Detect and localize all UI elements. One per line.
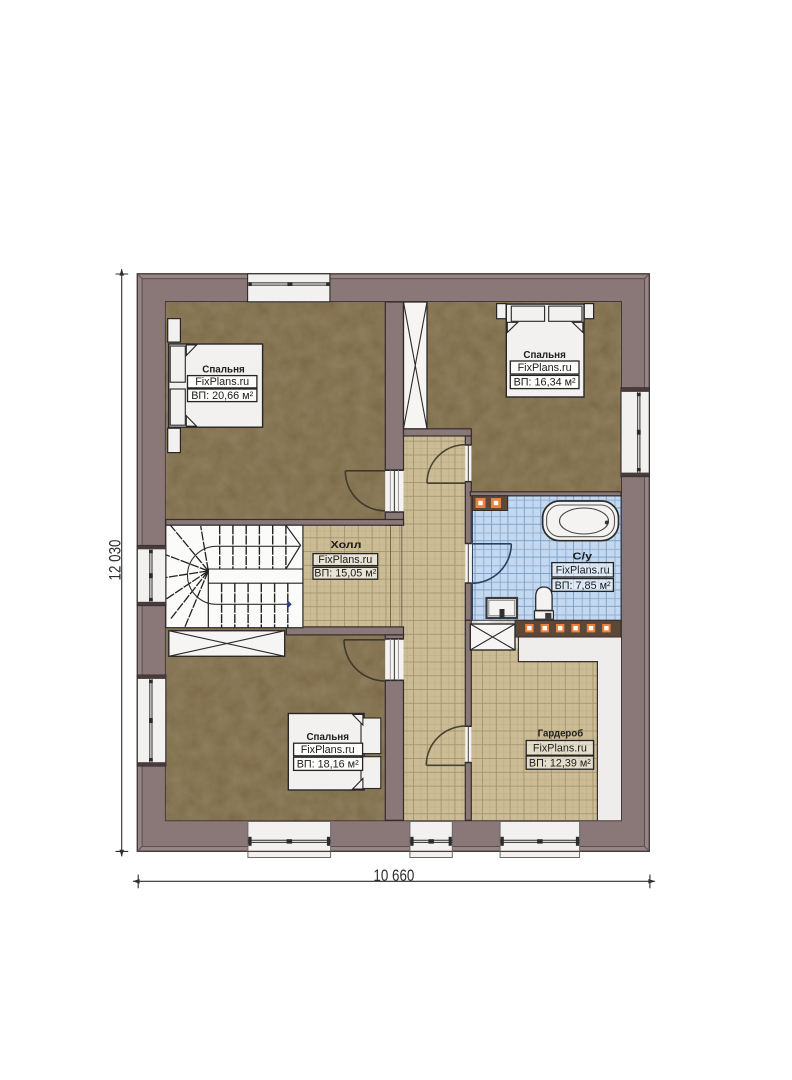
svg-text:ВП: 7,85 м²: ВП: 7,85 м² (555, 580, 611, 592)
svg-text:Спальня: Спальня (202, 363, 245, 375)
svg-text:ВП: 16,34 м²: ВП: 16,34 м² (514, 376, 576, 388)
svg-text:ВП: 12,39 м²: ВП: 12,39 м² (529, 757, 591, 769)
svg-text:12 030: 12 030 (106, 540, 124, 581)
svg-text:ВП: 20,66 м²: ВП: 20,66 м² (191, 390, 253, 402)
svg-text:Холл: Холл (331, 539, 362, 551)
svg-text:FixPlans.ru: FixPlans.ru (556, 564, 610, 576)
svg-text:FixPlans.ru: FixPlans.ru (533, 743, 587, 755)
svg-text:FixPlans.ru: FixPlans.ru (195, 376, 249, 388)
svg-text:Спальня: Спальня (523, 349, 566, 361)
svg-text:ВП: 15,05 м²: ВП: 15,05 м² (314, 568, 376, 580)
svg-text:FixPlans.ru: FixPlans.ru (301, 744, 355, 756)
svg-text:С/у: С/у (573, 551, 593, 563)
svg-text:FixPlans.ru: FixPlans.ru (318, 554, 372, 566)
svg-text:FixPlans.ru: FixPlans.ru (518, 362, 572, 374)
svg-text:ВП: 18,16 м²: ВП: 18,16 м² (297, 758, 359, 770)
svg-text:Гардероб: Гардероб (538, 728, 584, 740)
svg-text:10 660: 10 660 (373, 867, 414, 885)
svg-text:Спальня: Спальня (306, 731, 349, 743)
